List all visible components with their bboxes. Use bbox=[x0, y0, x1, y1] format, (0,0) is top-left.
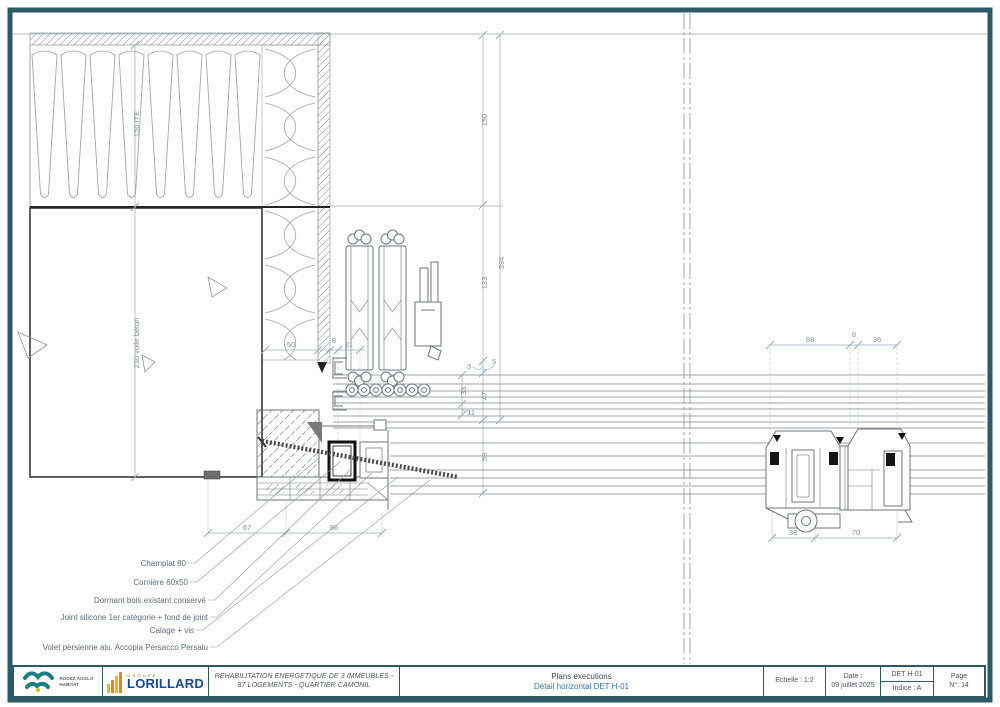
lorillard-logo-name: LORILLARD bbox=[127, 678, 204, 690]
cad-drawing-canvas: 150 ITE 230 voile béton bbox=[0, 0, 1000, 707]
rodez-logo-line1: RODEZ AGGLO bbox=[59, 676, 93, 682]
callout-calage: Calage + vis bbox=[150, 626, 194, 635]
callout-volet: Volet persienne alu. Accopla Persacco Pe… bbox=[43, 643, 208, 652]
project-line2: 87 LOGEMENTS - QUARTIER CAMONIL bbox=[238, 682, 371, 691]
project-title: REHABILITATION ENERGETIQUE DE 3 IMMEUBLE… bbox=[209, 667, 400, 696]
dim-8-right: 8 bbox=[852, 330, 856, 339]
reference-cell: DET H-01 Indice : A bbox=[881, 667, 934, 696]
dim-3: 3 bbox=[467, 362, 471, 371]
lorillard-logo-bars-icon bbox=[107, 671, 123, 693]
dim-133: 133 bbox=[480, 277, 489, 290]
dim-5: 5 bbox=[492, 357, 496, 366]
date-label: Date : bbox=[844, 673, 863, 682]
dim-8-left: 8 bbox=[332, 336, 336, 345]
drawing-sheet: 150 ITE 230 voile béton bbox=[0, 0, 1000, 707]
callout-corniere: Cornière 60x50 bbox=[133, 578, 188, 587]
doc-detail-name: Détail horizontal DET H-01 bbox=[534, 682, 629, 692]
rodez-agglo-logo: RODEZ AGGLO HABITAT bbox=[14, 667, 103, 696]
callout-champlat: Champlat 80 bbox=[141, 559, 187, 568]
rodez-logo-line2: HABITAT bbox=[59, 682, 93, 688]
dim-11: 11 bbox=[467, 408, 475, 417]
dim-394: 394 bbox=[497, 257, 506, 270]
dim-68: 68 bbox=[806, 335, 814, 344]
dim-150: 150 bbox=[480, 114, 489, 127]
dim-70: 70 bbox=[852, 528, 860, 537]
dim-36: 36 bbox=[873, 335, 881, 344]
dim-67: 67 bbox=[243, 523, 251, 532]
jamb-assembly bbox=[257, 410, 458, 510]
page-number: N°: 14 bbox=[949, 682, 969, 691]
lorillard-logo: GROUPE LORILLARD bbox=[103, 667, 209, 696]
meeting-stile-assembly bbox=[766, 429, 912, 532]
page-cell: Page N°: 14 bbox=[934, 667, 984, 696]
document-title: Plans executions Détail horizontal DET H… bbox=[400, 667, 764, 696]
date-cell: Date : 09 juillet 2025 bbox=[826, 667, 881, 696]
dim-33: 33 bbox=[459, 387, 468, 395]
dim-150-ite: 150 ITE bbox=[132, 111, 141, 137]
jamb-profiles bbox=[317, 230, 441, 410]
axis-centerline bbox=[684, 13, 690, 664]
dim-47: 47 bbox=[480, 392, 489, 400]
scale-value: Echelle : 1:2 bbox=[775, 677, 814, 686]
drawing-ref: DET H-01 bbox=[881, 668, 933, 682]
dim-50: 50 bbox=[287, 340, 295, 349]
callout-joint: Joint silicone 1er catégorie + fond de j… bbox=[61, 613, 209, 622]
project-line1: REHABILITATION ENERGETIQUE DE 3 IMMEUBLE… bbox=[215, 673, 394, 682]
scale-cell: Echelle : 1:2 bbox=[764, 667, 826, 696]
dim-59: 59 bbox=[480, 453, 489, 461]
rodez-agglo-logo-icon bbox=[22, 670, 56, 694]
title-block: RODEZ AGGLO HABITAT GROUPE LORILLARD REH… bbox=[12, 665, 986, 698]
dim-21: 21 bbox=[345, 340, 353, 349]
callout-dormant: Dormant bois existant conservé bbox=[94, 596, 207, 605]
date-value: 09 juillet 2025 bbox=[831, 682, 874, 691]
page-label: Page bbox=[951, 673, 967, 682]
dim-38: 38 bbox=[789, 528, 797, 537]
support-block bbox=[204, 471, 220, 479]
dim-230-voile-beton: 230 voile béton bbox=[132, 318, 141, 369]
revision-index: Indice : A bbox=[881, 682, 933, 695]
doc-type: Plans executions bbox=[551, 672, 611, 682]
